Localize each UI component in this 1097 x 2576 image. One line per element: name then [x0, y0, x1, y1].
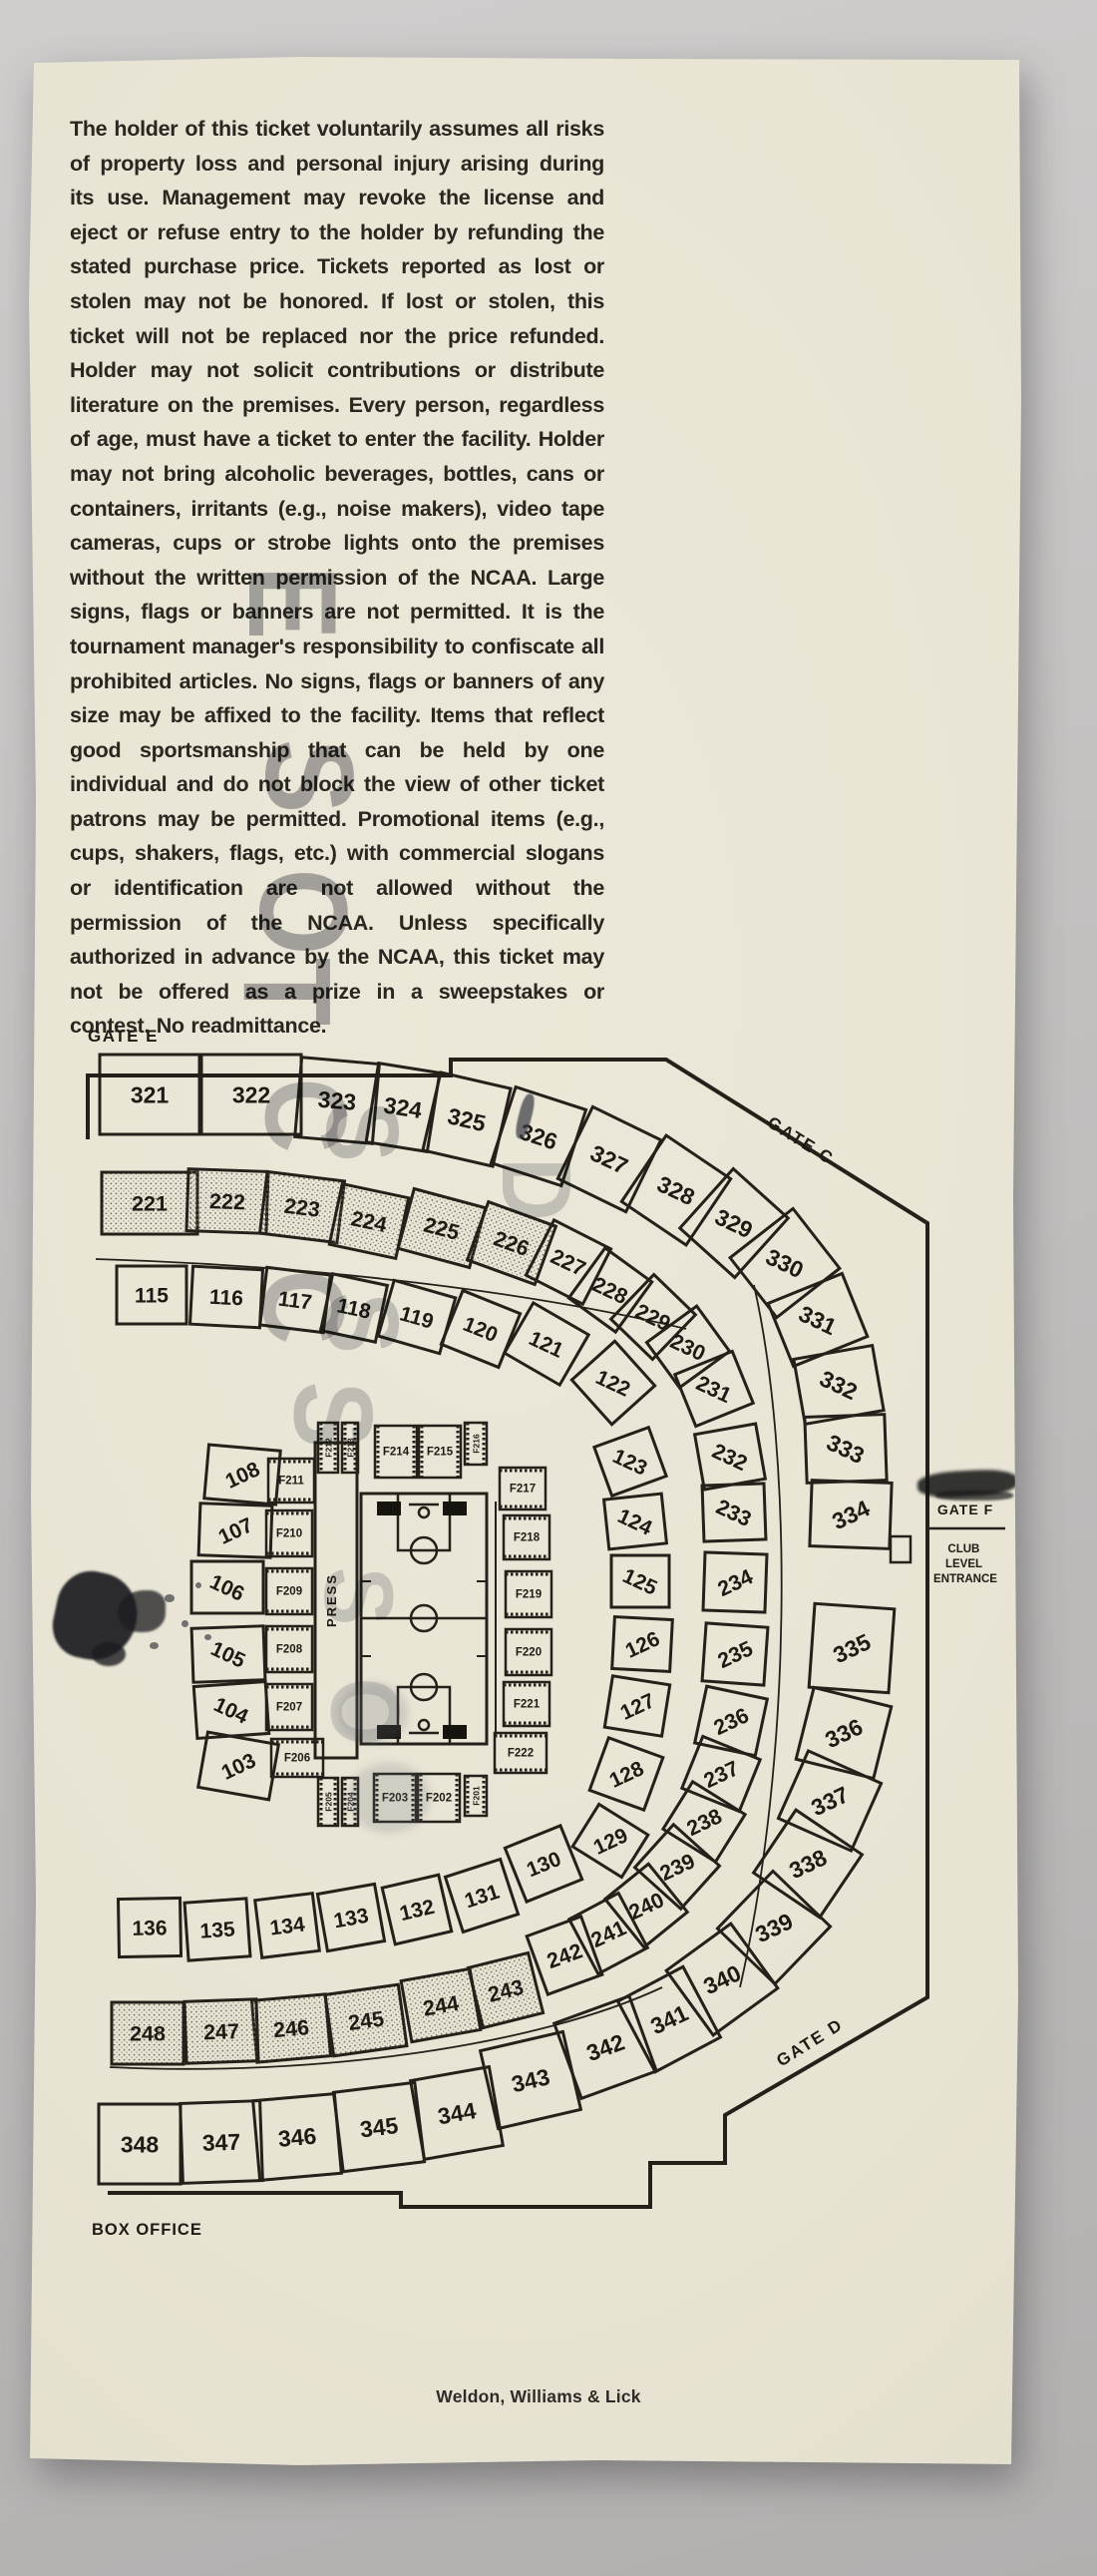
section-121: 121: [505, 1303, 588, 1385]
section-label-103: 103: [218, 1749, 259, 1785]
section-135: 135: [184, 1899, 250, 1960]
section-label-135: 135: [199, 1918, 236, 1942]
gate-c-label: GATE C: [764, 1112, 838, 1168]
stamp-smudge: [337, 1682, 409, 1744]
section-label-134: 134: [268, 1913, 306, 1939]
section-label-105: 105: [207, 1637, 249, 1673]
club-line-2: LEVEL: [945, 1558, 982, 1570]
section-343: 343: [481, 2031, 581, 2128]
section-label-337: 337: [807, 1781, 853, 1821]
gate-e-label: GATE E: [88, 1027, 159, 1046]
floor-section-F214: F214: [375, 1426, 417, 1478]
section-label-348: 348: [121, 2131, 160, 2157]
section-label-118: 118: [335, 1294, 373, 1324]
section-label-246: 246: [272, 2015, 310, 2042]
section-348: 348: [99, 2104, 181, 2184]
floor-section-F212: F212: [318, 1423, 338, 1473]
section-label-230: 230: [666, 1329, 709, 1366]
section-label-119: 119: [397, 1302, 436, 1333]
section-label-223: 223: [283, 1194, 322, 1222]
section-115: 115: [117, 1266, 186, 1324]
floor-label-F216: F216: [472, 1434, 482, 1454]
section-label-124: 124: [614, 1504, 656, 1540]
gate-f-label: GATE F: [937, 1502, 993, 1517]
club-line-3: ENTRANCE: [933, 1573, 997, 1585]
section-347: 347: [181, 2101, 263, 2184]
section-247: 247: [184, 1999, 258, 2063]
floor-section-F216: F216: [465, 1423, 487, 1465]
section-label-323: 323: [317, 1086, 357, 1115]
section-332: 332: [794, 1346, 884, 1425]
floor-label-F214: F214: [383, 1447, 410, 1459]
gate-d-label: GATE D: [773, 2014, 847, 2070]
floor-section-F205: F205: [318, 1778, 338, 1826]
section-128: 128: [589, 1738, 663, 1810]
section-label-336: 336: [821, 1713, 867, 1753]
section-116: 116: [190, 1266, 263, 1328]
section-label-132: 132: [398, 1896, 437, 1926]
section-label-238: 238: [683, 1804, 726, 1841]
section-label-104: 104: [210, 1693, 252, 1729]
section-245: 245: [325, 1984, 407, 2056]
section-label-322: 322: [232, 1081, 270, 1107]
section-label-339: 339: [751, 1908, 797, 1947]
section-233: 233: [702, 1484, 766, 1541]
section-label-327: 327: [586, 1139, 632, 1179]
section-label-324: 324: [382, 1091, 424, 1123]
floor-section-F209: F209: [266, 1568, 312, 1614]
section-label-248: 248: [130, 2022, 166, 2046]
section-337: 337: [778, 1751, 881, 1851]
section-label-247: 247: [203, 2019, 240, 2044]
section-238: 238: [663, 1782, 745, 1862]
section-333: 333: [805, 1415, 887, 1484]
section-label-130: 130: [524, 1848, 564, 1882]
section-246: 246: [251, 1994, 330, 2062]
section-label-108: 108: [222, 1458, 264, 1494]
section-label-334: 334: [828, 1495, 874, 1534]
section-label-321: 321: [131, 1081, 170, 1107]
section-label-242: 242: [544, 1938, 585, 1973]
section-label-222: 222: [209, 1189, 246, 1214]
section-label-335: 335: [829, 1628, 875, 1668]
floor-section-F222: F222: [495, 1733, 547, 1773]
floor-label-F222: F222: [508, 1748, 534, 1760]
bench-marker: [377, 1502, 401, 1515]
section-338: 338: [754, 1810, 863, 1918]
section-236: 236: [695, 1686, 768, 1756]
section-117: 117: [260, 1267, 331, 1332]
section-119: 119: [378, 1280, 456, 1353]
section-335: 335: [809, 1603, 895, 1692]
section-label-133: 133: [332, 1905, 371, 1933]
section-133: 133: [317, 1884, 384, 1950]
section-118: 118: [321, 1274, 388, 1342]
section-label-127: 127: [617, 1689, 658, 1725]
section-label-332: 332: [816, 1365, 862, 1405]
section-331: 331: [768, 1273, 868, 1366]
ticket-shadow-wrap: The holder of this ticket voluntarily as…: [0, 0, 1097, 2576]
section-132: 132: [382, 1875, 452, 1944]
section-label-227: 227: [547, 1244, 589, 1281]
section-label-121: 121: [526, 1327, 567, 1363]
section-label-106: 106: [206, 1570, 247, 1606]
floor-section-F201: F201: [465, 1776, 487, 1816]
section-222: 222: [186, 1169, 268, 1234]
section-label-341: 341: [646, 1999, 692, 2039]
section-321: 321: [100, 1055, 199, 1134]
section-label-346: 346: [277, 2123, 317, 2152]
floor-label-F205: F205: [324, 1792, 334, 1812]
section-label-235: 235: [714, 1636, 757, 1673]
section-334: 334: [810, 1481, 892, 1549]
section-label-237: 237: [700, 1756, 743, 1793]
section-232: 232: [695, 1424, 766, 1490]
printer-credit: Weldon, Williams & Lick: [329, 2386, 748, 2407]
section-234: 234: [703, 1552, 767, 1612]
floor-label-F221: F221: [514, 1699, 541, 1711]
press-label: PRESS: [324, 1573, 339, 1627]
section-label-122: 122: [592, 1366, 633, 1402]
section-label-117: 117: [277, 1288, 313, 1315]
section-345: 345: [333, 2082, 424, 2171]
ticket-back: The holder of this ticket voluntarily as…: [0, 0, 1097, 2576]
section-label-129: 129: [590, 1824, 631, 1860]
section-label-136: 136: [132, 1917, 167, 1940]
marker-smudge: [935, 1491, 1013, 1501]
section-label-340: 340: [699, 1959, 745, 1999]
section-label-347: 347: [201, 2129, 240, 2156]
bench-marker: [443, 1502, 467, 1515]
section-122: 122: [571, 1341, 654, 1424]
section-label-116: 116: [208, 1286, 243, 1311]
section-label-328: 328: [653, 1170, 699, 1210]
section-label-245: 245: [347, 2006, 386, 2035]
section-235: 235: [702, 1623, 768, 1685]
section-126: 126: [612, 1617, 673, 1672]
floor-section-F207: F207: [266, 1684, 312, 1730]
floor-label-F206: F206: [284, 1753, 310, 1765]
section-label-120: 120: [460, 1313, 501, 1347]
section-346: 346: [253, 2094, 342, 2181]
section-327: 327: [557, 1106, 660, 1211]
section-106: 106: [191, 1561, 263, 1613]
section-label-107: 107: [215, 1513, 256, 1549]
stamp-smudge: [347, 1762, 431, 1834]
floor-label-F217: F217: [510, 1484, 536, 1496]
section-label-342: 342: [583, 2028, 628, 2066]
floor-label-F208: F208: [276, 1644, 303, 1656]
floor-section-F215: F215: [419, 1426, 461, 1478]
section-label-345: 345: [358, 2112, 399, 2143]
ink-speck: [150, 1642, 159, 1649]
section-104: 104: [193, 1682, 268, 1739]
section-label-236: 236: [710, 1703, 753, 1740]
section-label-331: 331: [795, 1300, 841, 1340]
floor-section-F208: F208: [266, 1626, 312, 1672]
section-label-125: 125: [619, 1564, 661, 1600]
floor-label-F207: F207: [276, 1702, 302, 1714]
section-125: 125: [611, 1555, 669, 1607]
section-label-231: 231: [692, 1371, 735, 1408]
section-label-329: 329: [711, 1203, 757, 1243]
section-124: 124: [604, 1494, 667, 1549]
section-344: 344: [411, 2067, 504, 2160]
section-127: 127: [604, 1676, 669, 1736]
section-label-221: 221: [132, 1192, 168, 1216]
club-level-entrance-label: CLUB LEVEL ENTRANCE: [933, 1543, 997, 1585]
ink-speck: [195, 1582, 201, 1588]
floor-label-F219: F219: [516, 1589, 542, 1601]
ink-speck: [182, 1620, 188, 1627]
floor-label-F220: F220: [516, 1647, 542, 1659]
section-336: 336: [796, 1687, 892, 1778]
ticket-photo: The holder of this ticket voluntarily as…: [0, 0, 1097, 2576]
section-105: 105: [191, 1626, 265, 1682]
section-label-330: 330: [762, 1243, 808, 1283]
section-label-325: 325: [445, 1102, 488, 1136]
section-224: 224: [329, 1184, 408, 1259]
bench-marker: [443, 1725, 467, 1739]
section-244: 244: [401, 1968, 481, 2041]
section-103: 103: [198, 1732, 279, 1800]
section-134: 134: [255, 1894, 320, 1958]
section-label-131: 131: [462, 1881, 503, 1914]
floor-section-F220: F220: [506, 1629, 551, 1675]
floor-section-F217: F217: [500, 1468, 546, 1509]
section-130: 130: [505, 1826, 581, 1902]
section-326: 326: [491, 1087, 585, 1186]
floor-label-F211: F211: [278, 1476, 304, 1488]
floor-label-F213: F213: [346, 1438, 356, 1458]
section-label-128: 128: [606, 1757, 648, 1793]
section-label-344: 344: [436, 2097, 479, 2129]
section-label-229: 229: [631, 1299, 674, 1336]
section-123: 123: [594, 1428, 666, 1497]
seating-map: 3213223233243253263273283293303313323333…: [0, 0, 1097, 2576]
section-322: 322: [201, 1055, 301, 1134]
section-label-232: 232: [708, 1439, 751, 1476]
section-label-115: 115: [135, 1285, 169, 1308]
section-label-233: 233: [712, 1495, 755, 1531]
section-label-126: 126: [622, 1627, 663, 1663]
floor-label-F201: F201: [472, 1786, 482, 1806]
section-label-343: 343: [509, 2063, 551, 2097]
ink-speck: [204, 1634, 211, 1640]
club-line-1: CLUB: [947, 1543, 979, 1555]
ink-speck: [165, 1594, 175, 1602]
floor-label-F209: F209: [276, 1586, 302, 1598]
section-label-123: 123: [609, 1445, 650, 1481]
floor-label-F210: F210: [276, 1528, 302, 1540]
section-136: 136: [118, 1898, 181, 1956]
floor-label-F215: F215: [427, 1447, 454, 1459]
floor-label-F218: F218: [514, 1532, 541, 1544]
section-label-234: 234: [714, 1564, 757, 1601]
section-label-338: 338: [785, 1844, 831, 1884]
club-entrance-box: [891, 1536, 911, 1562]
section-107: 107: [198, 1503, 272, 1557]
section-221: 221: [102, 1172, 197, 1234]
floor-label-F212: F212: [324, 1438, 334, 1458]
section-325: 325: [423, 1073, 511, 1166]
box-office-label: BOX OFFICE: [92, 2221, 202, 2239]
section-131: 131: [445, 1859, 518, 1932]
floor-section-F218: F218: [504, 1515, 549, 1559]
floor-section-F219: F219: [506, 1571, 551, 1617]
section-248: 248: [112, 2002, 183, 2064]
floor-section-F221: F221: [504, 1682, 549, 1726]
section-label-333: 333: [823, 1429, 869, 1469]
